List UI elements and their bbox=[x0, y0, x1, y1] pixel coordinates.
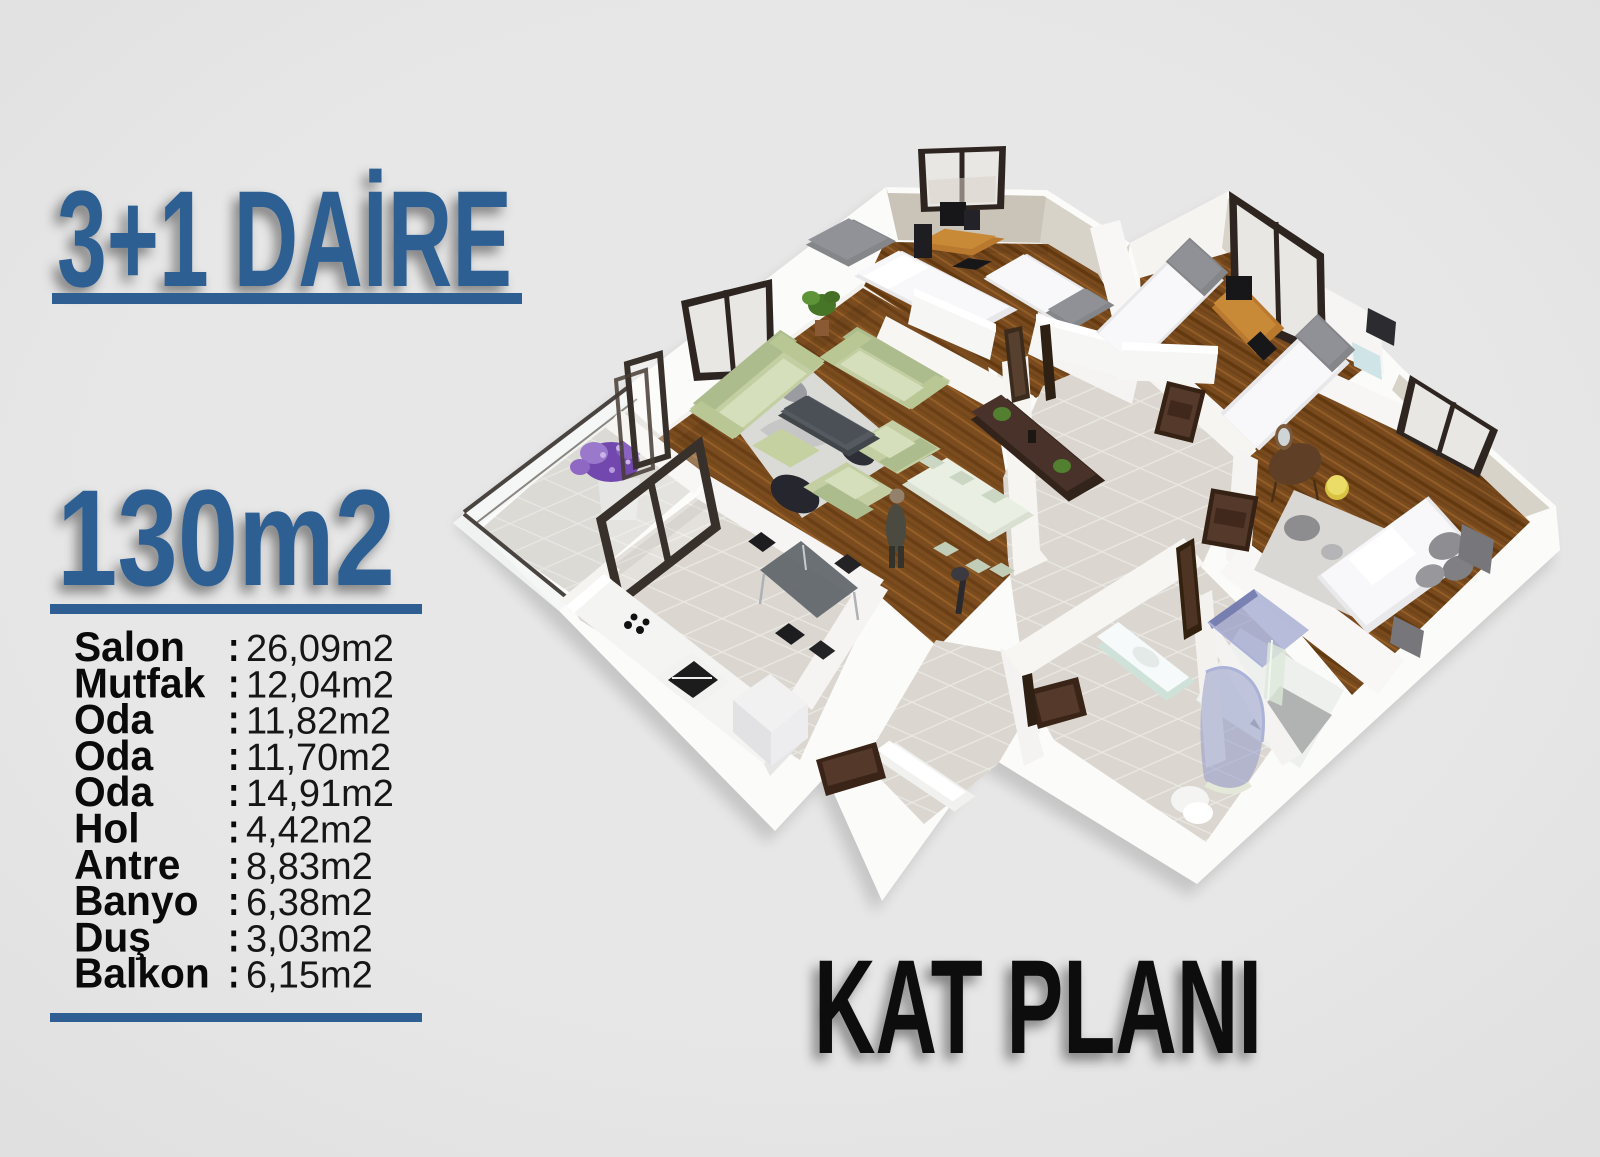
svg-text:Balkon: Balkon bbox=[74, 950, 210, 997]
svg-text:6,15m2: 6,15m2 bbox=[246, 955, 373, 997]
svg-text:KAT PLANI: KAT PLANI bbox=[814, 933, 1262, 1082]
svg-text::: : bbox=[228, 951, 239, 998]
svg-text:130m2: 130m2 bbox=[57, 462, 395, 615]
